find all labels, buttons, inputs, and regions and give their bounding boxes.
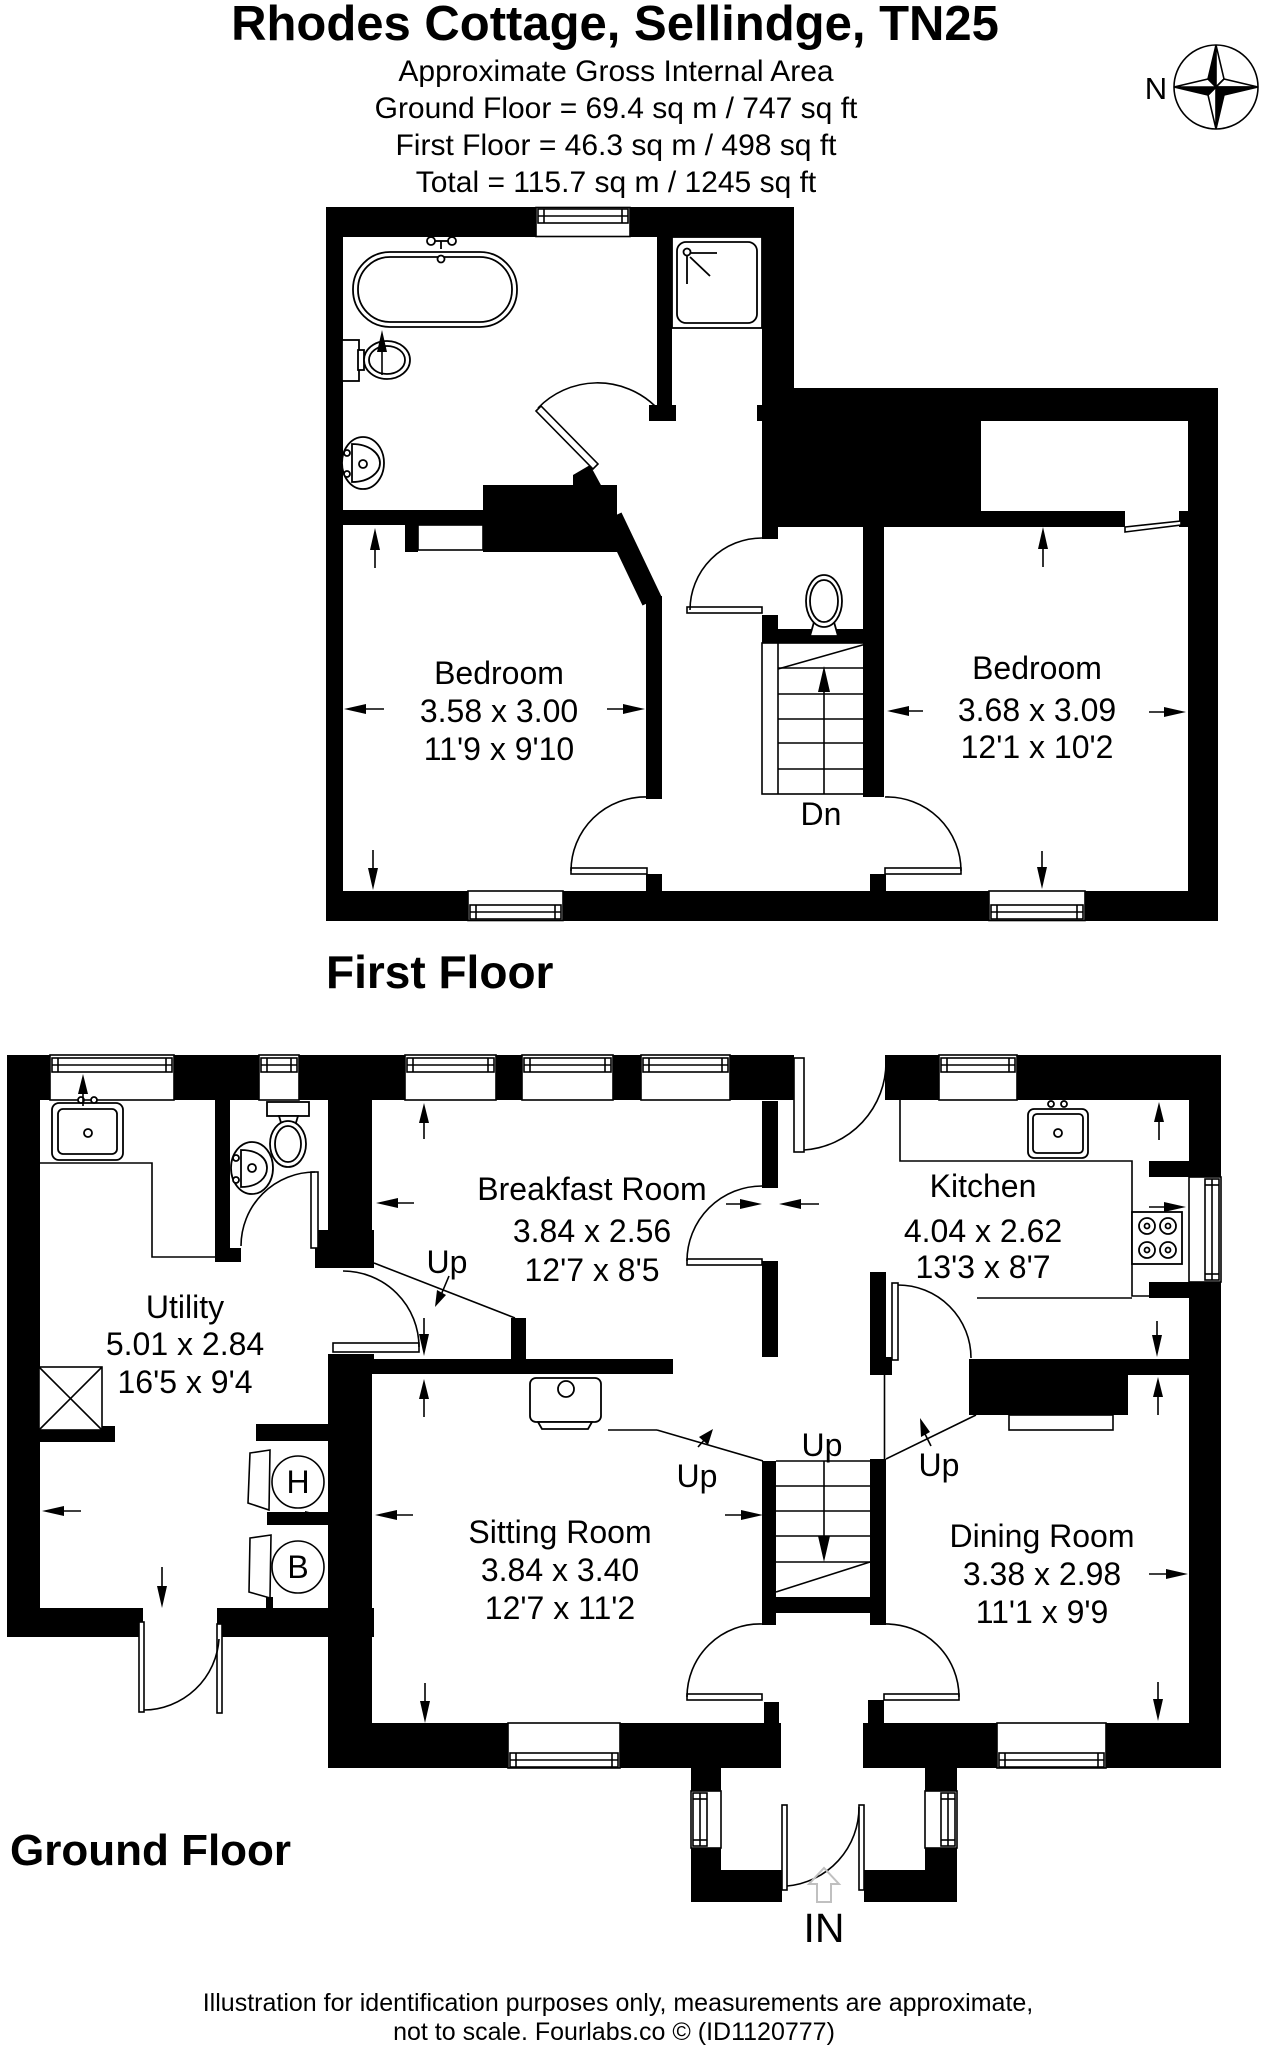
svg-text:3.84 x 2.56: 3.84 x 2.56	[513, 1213, 671, 1249]
svg-text:B: B	[287, 1549, 308, 1585]
svg-text:13'3 x 8'7: 13'3 x 8'7	[916, 1249, 1051, 1285]
svg-text:Up: Up	[427, 1244, 468, 1280]
svg-text:Ground Floor: Ground Floor	[10, 1826, 291, 1875]
svg-text:Approximate Gross Internal Are: Approximate Gross Internal Area	[398, 55, 834, 88]
svg-text:N: N	[1145, 71, 1167, 106]
svg-text:3.38 x 2.98: 3.38 x 2.98	[963, 1556, 1121, 1592]
svg-text:Dining Room: Dining Room	[950, 1518, 1135, 1554]
svg-text:Illustration for identificatio: Illustration for identification purposes…	[203, 1989, 1034, 2017]
svg-text:Kitchen: Kitchen	[930, 1168, 1037, 1204]
svg-text:3.58 x 3.00: 3.58 x 3.00	[420, 693, 578, 729]
svg-text:12'7 x 11'2: 12'7 x 11'2	[485, 1590, 635, 1626]
svg-text:First Floor = 46.3 sq m / 498: First Floor = 46.3 sq m / 498 sq ft	[395, 129, 837, 162]
svg-text:H: H	[286, 1464, 309, 1500]
svg-text:3.68 x 3.09: 3.68 x 3.09	[958, 692, 1116, 728]
svg-text:Up: Up	[677, 1458, 718, 1494]
svg-text:First Floor: First Floor	[326, 946, 554, 998]
svg-text:3.84 x 3.40: 3.84 x 3.40	[481, 1552, 639, 1588]
svg-text:Utility: Utility	[146, 1289, 224, 1325]
svg-text:11'1 x 9'9: 11'1 x 9'9	[976, 1594, 1109, 1630]
svg-text:not to scale. Fourlabs.co © (I: not to scale. Fourlabs.co © (ID1120777)	[393, 2018, 835, 2046]
svg-text:5.01 x 2.84: 5.01 x 2.84	[106, 1326, 264, 1362]
svg-text:Ground Floor = 69.4 sq m / 747: Ground Floor = 69.4 sq m / 747 sq ft	[375, 92, 858, 125]
svg-text:12'7 x 8'5: 12'7 x 8'5	[525, 1252, 660, 1288]
svg-text:Up: Up	[802, 1427, 843, 1463]
svg-text:Dn: Dn	[801, 796, 842, 832]
svg-text:Breakfast Room: Breakfast Room	[477, 1171, 706, 1207]
svg-text:Bedroom: Bedroom	[972, 650, 1102, 686]
svg-text:11'9 x 9'10: 11'9 x 9'10	[424, 731, 574, 767]
svg-text:Rhodes Cottage, Sellindge, TN2: Rhodes Cottage, Sellindge, TN25	[231, 0, 999, 51]
svg-text:Sitting Room: Sitting Room	[468, 1514, 651, 1550]
svg-text:12'1 x 10'2: 12'1 x 10'2	[961, 729, 1114, 765]
svg-text:Bedroom: Bedroom	[434, 655, 564, 691]
svg-text:4.04 x 2.62: 4.04 x 2.62	[904, 1213, 1062, 1249]
svg-text:Total = 115.7 sq m / 1245 sq f: Total = 115.7 sq m / 1245 sq ft	[416, 166, 817, 199]
svg-text:IN: IN	[804, 1905, 845, 1951]
svg-text:16'5 x 9'4: 16'5 x 9'4	[118, 1364, 253, 1400]
svg-text:Up: Up	[919, 1447, 960, 1483]
